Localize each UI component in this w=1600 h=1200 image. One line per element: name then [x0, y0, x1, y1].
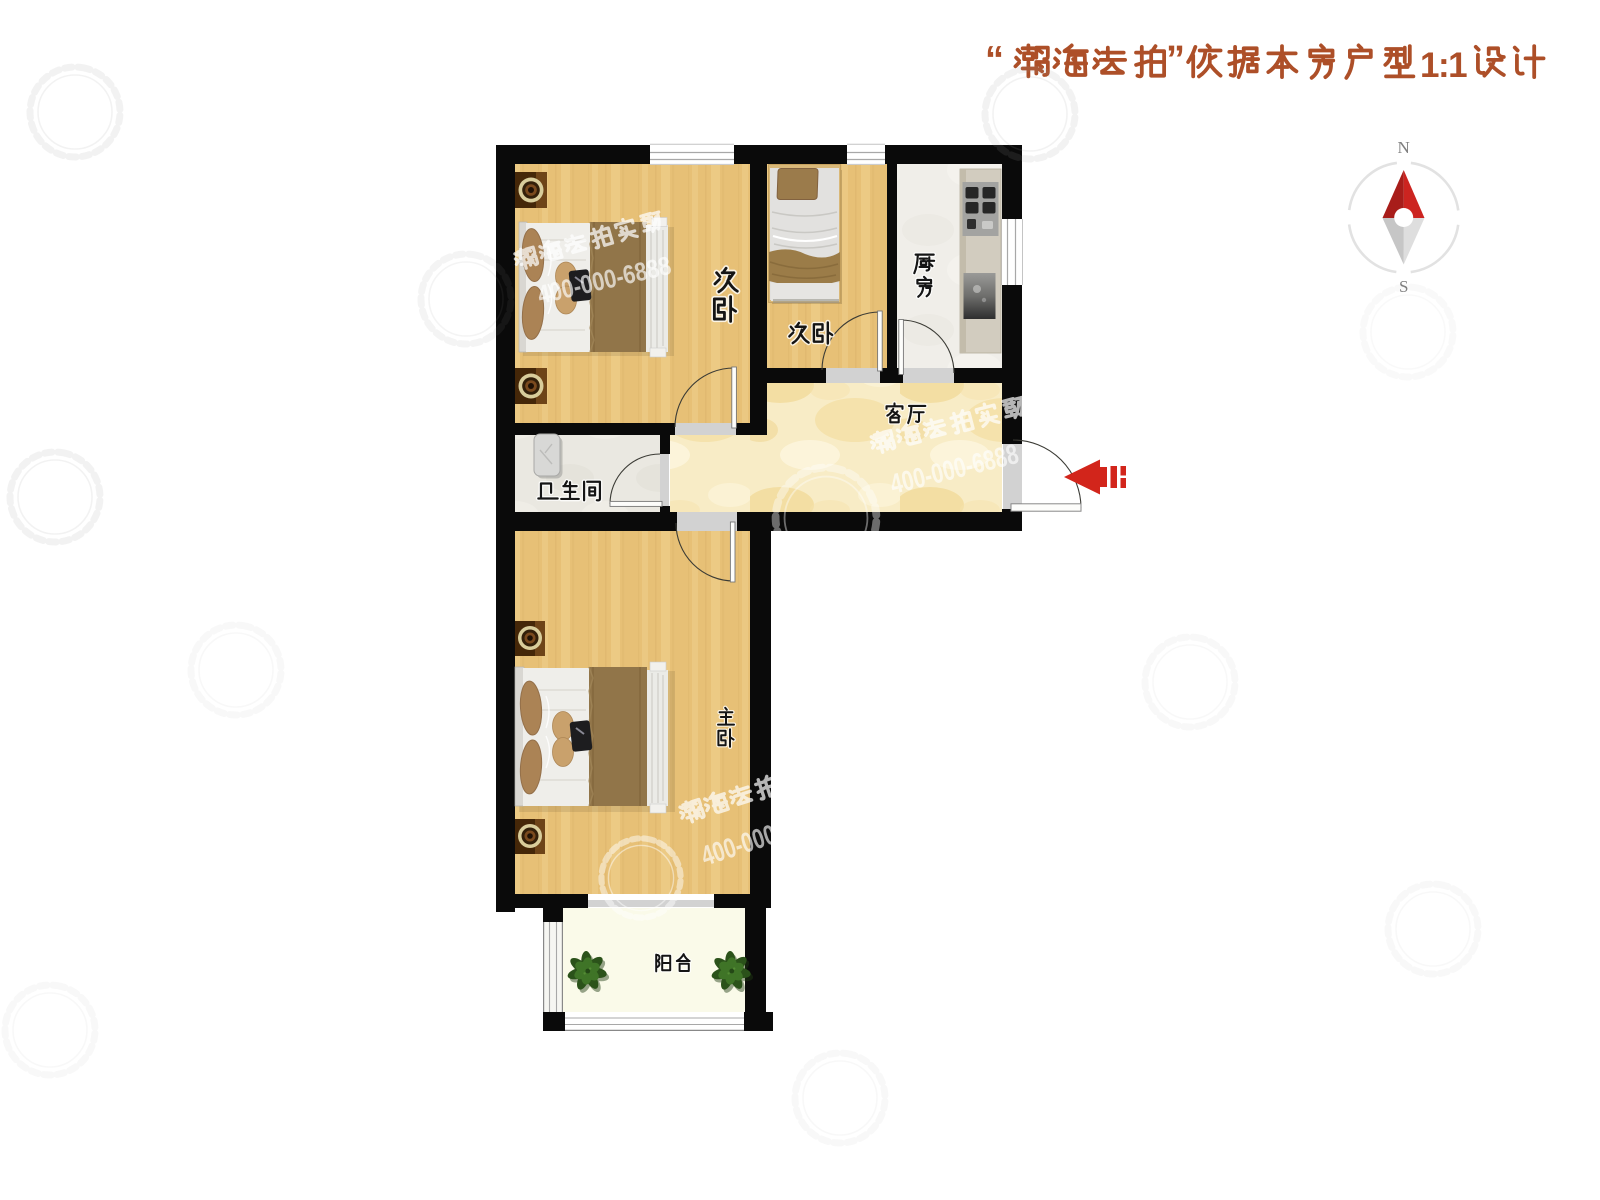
- svg-text:”: ”: [1166, 39, 1185, 81]
- svg-text:1:1: 1:1: [1420, 46, 1467, 85]
- svg-text:“: “: [985, 39, 1004, 81]
- svg-text:N: N: [1398, 138, 1410, 157]
